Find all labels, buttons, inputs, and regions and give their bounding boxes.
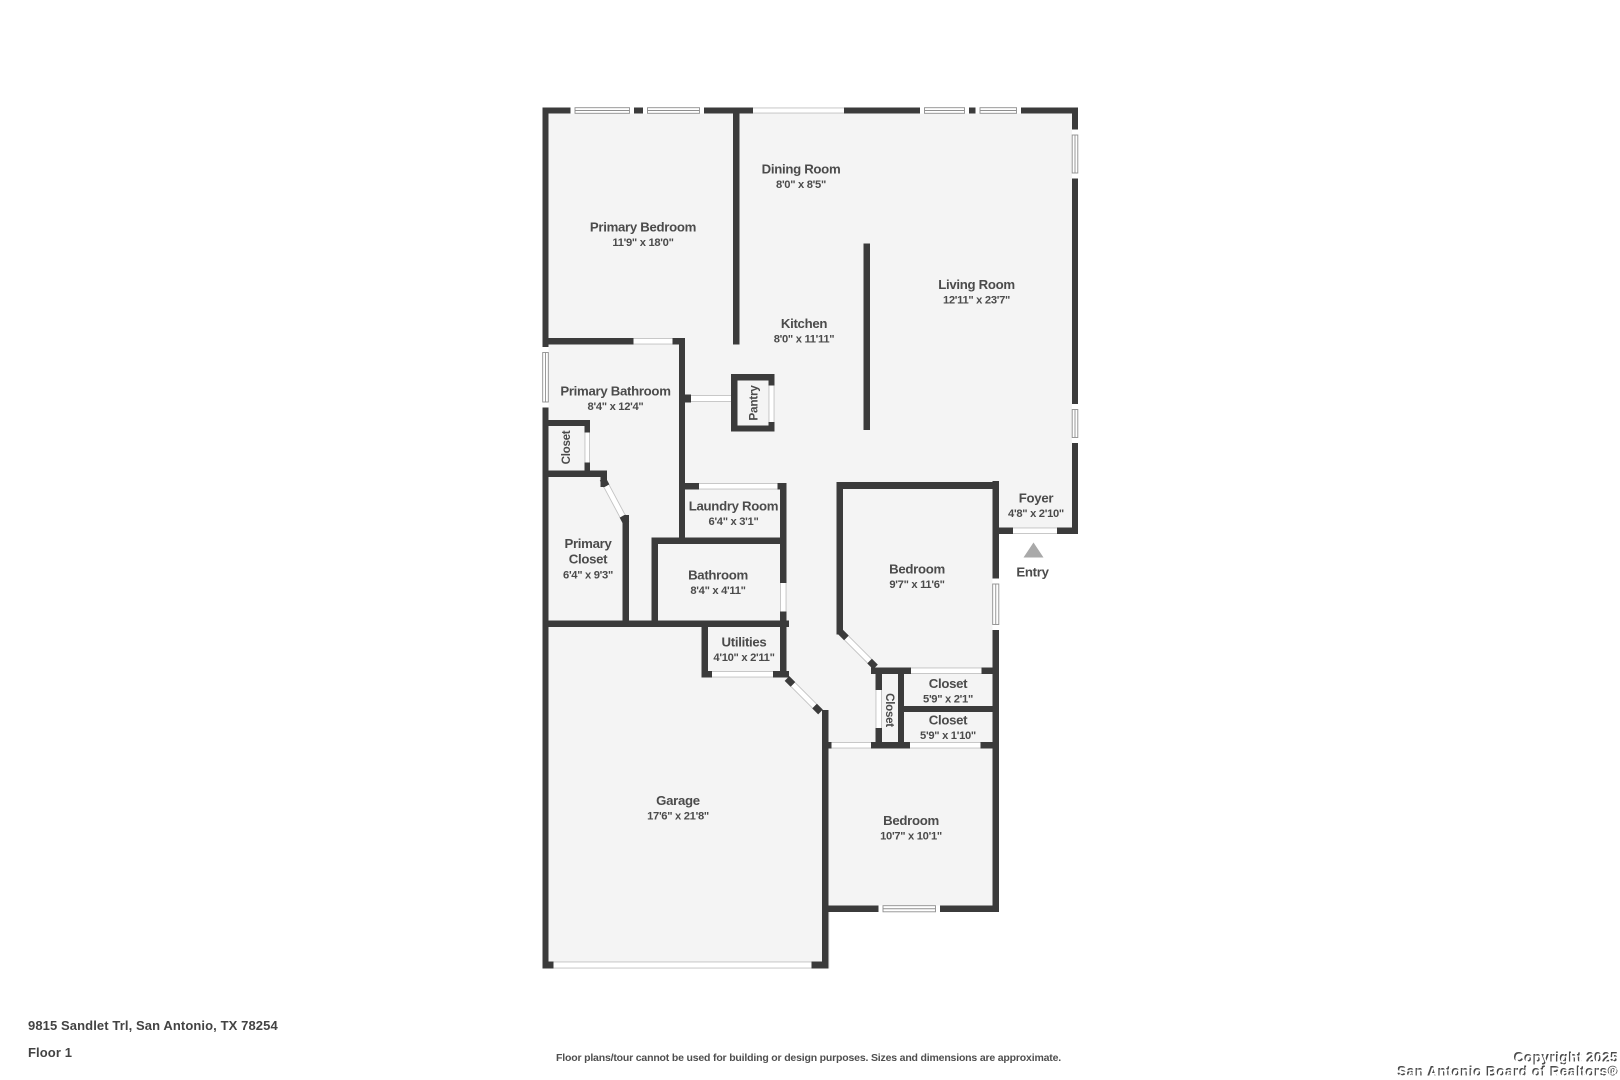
svg-text:10'7" x 10'1": 10'7" x 10'1" <box>880 831 942 843</box>
svg-text:9'7" x 11'6": 9'7" x 11'6" <box>889 579 944 591</box>
svg-text:Floor plans/tour cannot be use: Floor plans/tour cannot be used for buil… <box>556 1052 1061 1064</box>
svg-text:8'4" x 4'11": 8'4" x 4'11" <box>690 585 745 597</box>
svg-text:6'4" x 3'1": 6'4" x 3'1" <box>709 516 759 528</box>
svg-text:Laundry Room: Laundry Room <box>689 499 778 514</box>
svg-text:Kitchen: Kitchen <box>781 316 828 331</box>
svg-text:9815 Sandlet Trl, San Antonio,: 9815 Sandlet Trl, San Antonio, TX 78254 <box>28 1018 278 1033</box>
svg-text:8'0" x 8'5": 8'0" x 8'5" <box>776 179 826 191</box>
svg-text:Entry: Entry <box>1016 565 1049 580</box>
svg-text:11'9" x 18'0": 11'9" x 18'0" <box>612 237 673 249</box>
svg-text:Closet: Closet <box>560 430 573 464</box>
svg-text:Utilities: Utilities <box>722 635 767 650</box>
svg-text:Foyer: Foyer <box>1019 491 1054 506</box>
svg-text:Garage: Garage <box>656 793 700 808</box>
svg-text:Dining Room: Dining Room <box>762 162 841 177</box>
svg-text:17'6" x 21'8": 17'6" x 21'8" <box>647 811 709 823</box>
svg-text:Pantry: Pantry <box>747 385 761 421</box>
svg-text:Closet: Closet <box>929 713 968 728</box>
svg-text:Primary: Primary <box>564 536 612 551</box>
svg-text:Closet: Closet <box>929 676 968 691</box>
svg-text:San Antonio Board of Realtors®: San Antonio Board of Realtors® <box>1398 1065 1619 1080</box>
svg-text:Closet: Closet <box>883 693 896 727</box>
svg-text:8'0" x 11'11": 8'0" x 11'11" <box>774 334 835 346</box>
svg-text:5'9" x 2'1": 5'9" x 2'1" <box>923 694 973 706</box>
svg-text:6'4" x 9'3": 6'4" x 9'3" <box>563 570 613 582</box>
svg-text:Primary Bathroom: Primary Bathroom <box>560 384 670 399</box>
svg-text:12'11" x 23'7": 12'11" x 23'7" <box>943 295 1010 307</box>
svg-text:Bedroom: Bedroom <box>883 813 939 828</box>
svg-text:8'4" x 12'4": 8'4" x 12'4" <box>588 401 644 413</box>
svg-text:Bathroom: Bathroom <box>688 568 748 583</box>
svg-text:4'10" x 2'11": 4'10" x 2'11" <box>713 652 774 664</box>
svg-text:Living Room: Living Room <box>938 277 1015 292</box>
svg-text:Primary Bedroom: Primary Bedroom <box>590 220 696 235</box>
svg-text:5'9" x 1'10": 5'9" x 1'10" <box>920 730 976 742</box>
svg-text:Closet: Closet <box>569 552 608 567</box>
svg-text:4'8" x 2'10": 4'8" x 2'10" <box>1008 508 1064 520</box>
svg-text:Bedroom: Bedroom <box>889 562 945 577</box>
svg-text:Floor 1: Floor 1 <box>28 1045 72 1060</box>
